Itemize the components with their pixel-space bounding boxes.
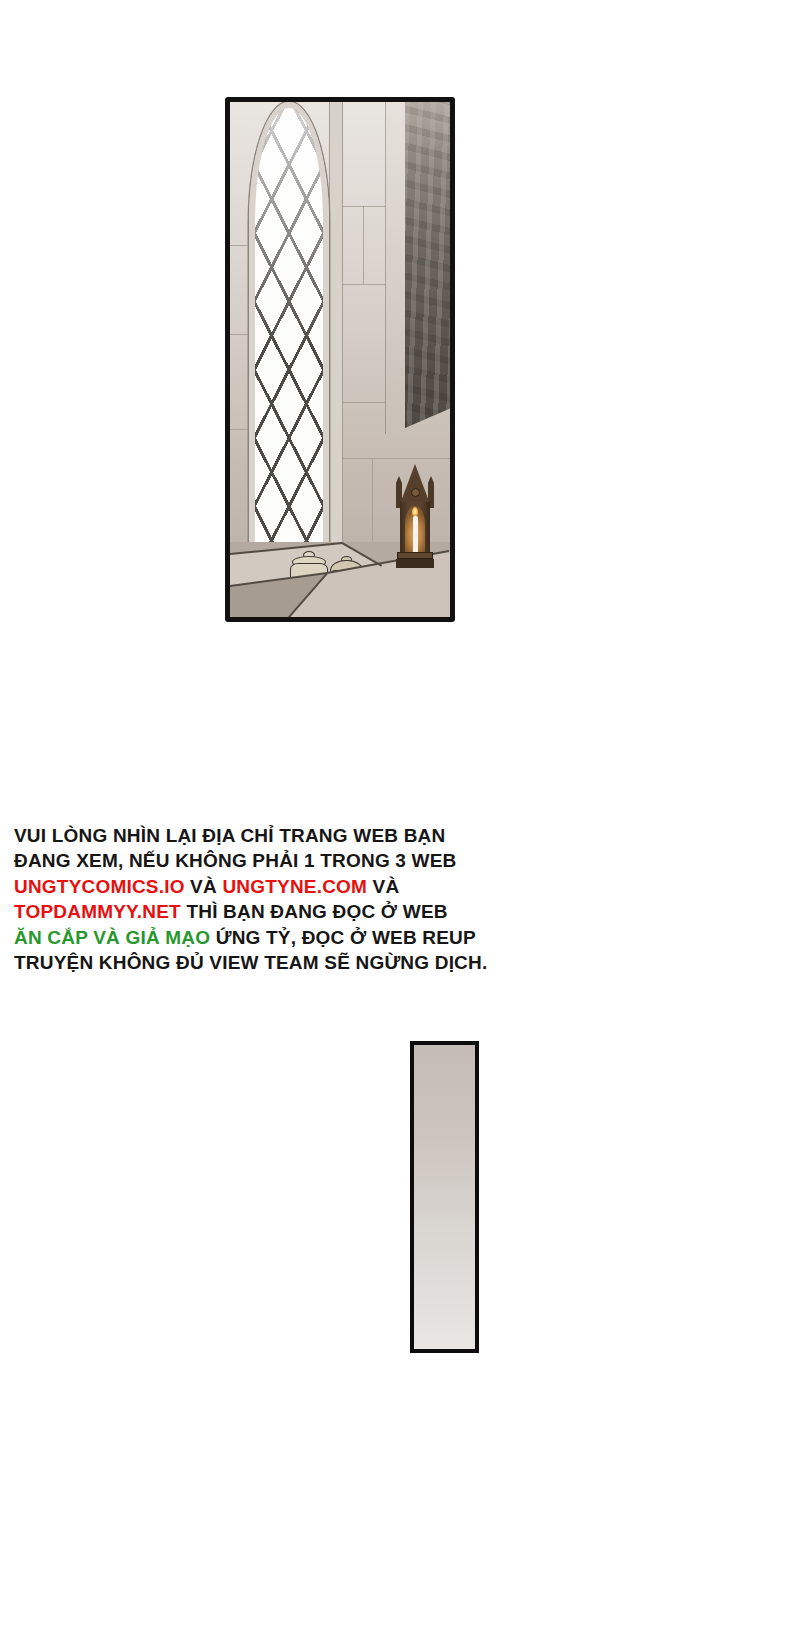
notice-segment-black: ỨNG TỶ, ĐỌC Ở WEB REUP <box>210 927 476 948</box>
gradient-strip-panel <box>410 1041 479 1353</box>
stone-seam <box>230 334 249 335</box>
notice-line: ĂN CẮP VÀ GIẢ MẠO ỨNG TỶ, ĐỌC Ở WEB REUP <box>14 925 484 950</box>
gothic-window <box>249 102 329 548</box>
notice-segment-red: UNGTYCOMICS.IO <box>14 876 185 897</box>
notice-line: TOPDAMMYY.NET THÌ BẠN ĐANG ĐỌC Ở WEB <box>14 899 484 924</box>
stone-seam <box>230 245 249 246</box>
notice-line: TRUYỆN KHÔNG ĐỦ VIEW TEAM SẼ NGỪNG DỊCH. <box>14 950 484 975</box>
notice-segment-black: VÀ <box>367 876 399 897</box>
stone-seam <box>341 284 385 285</box>
stone-seam <box>340 458 450 459</box>
comic-panel <box>225 97 455 622</box>
stone-seam <box>372 458 373 544</box>
stone-seam <box>230 429 249 430</box>
notice-line: ĐANG XEM, NẾU KHÔNG PHẢI 1 TRONG 3 WEB <box>14 848 484 873</box>
candle-flame <box>412 507 418 516</box>
notice-line: UNGTYCOMICS.IO VÀ UNGTYNE.COM VÀ <box>14 874 484 899</box>
wall-pilaster <box>385 102 406 434</box>
stone-seam <box>341 402 385 403</box>
notice-segment-black: ĐANG XEM, NẾU KHÔNG PHẢI 1 TRONG 3 WEB <box>14 850 457 871</box>
notice-line: VUI LÒNG NHÌN LẠI ĐỊA CHỈ TRANG WEB BẠN <box>14 823 484 848</box>
dark-tapestry <box>405 102 450 428</box>
window-glass-lattice <box>255 108 323 542</box>
window-arch-molding <box>329 102 343 543</box>
piracy-warning-text: VUI LÒNG NHÌN LẠI ĐỊA CHỈ TRANG WEB BẠNĐ… <box>14 823 484 975</box>
notice-segment-green: ĂN CẮP VÀ GIẢ MẠO <box>14 927 210 948</box>
notice-segment-black: VÀ <box>185 876 223 897</box>
candle-shrine <box>396 464 434 568</box>
stone-seam <box>363 206 364 284</box>
notice-segment-black: VUI LÒNG NHÌN LẠI ĐỊA CHỈ TRANG WEB BẠN <box>14 825 445 846</box>
candle <box>413 516 418 554</box>
notice-segment-red: UNGTYNE.COM <box>222 876 367 897</box>
shrine-base <box>396 559 434 568</box>
notice-segment-red: TOPDAMMYY.NET <box>14 901 181 922</box>
notice-segment-black: TRUYỆN KHÔNG ĐỦ VIEW TEAM SẼ NGỪNG DỊCH. <box>14 952 487 973</box>
shrine-rosette <box>411 488 420 497</box>
shrine-gable <box>400 464 430 504</box>
notice-segment-black: THÌ BẠN ĐANG ĐỌC Ở WEB <box>181 901 448 922</box>
shrine-base <box>397 552 433 559</box>
